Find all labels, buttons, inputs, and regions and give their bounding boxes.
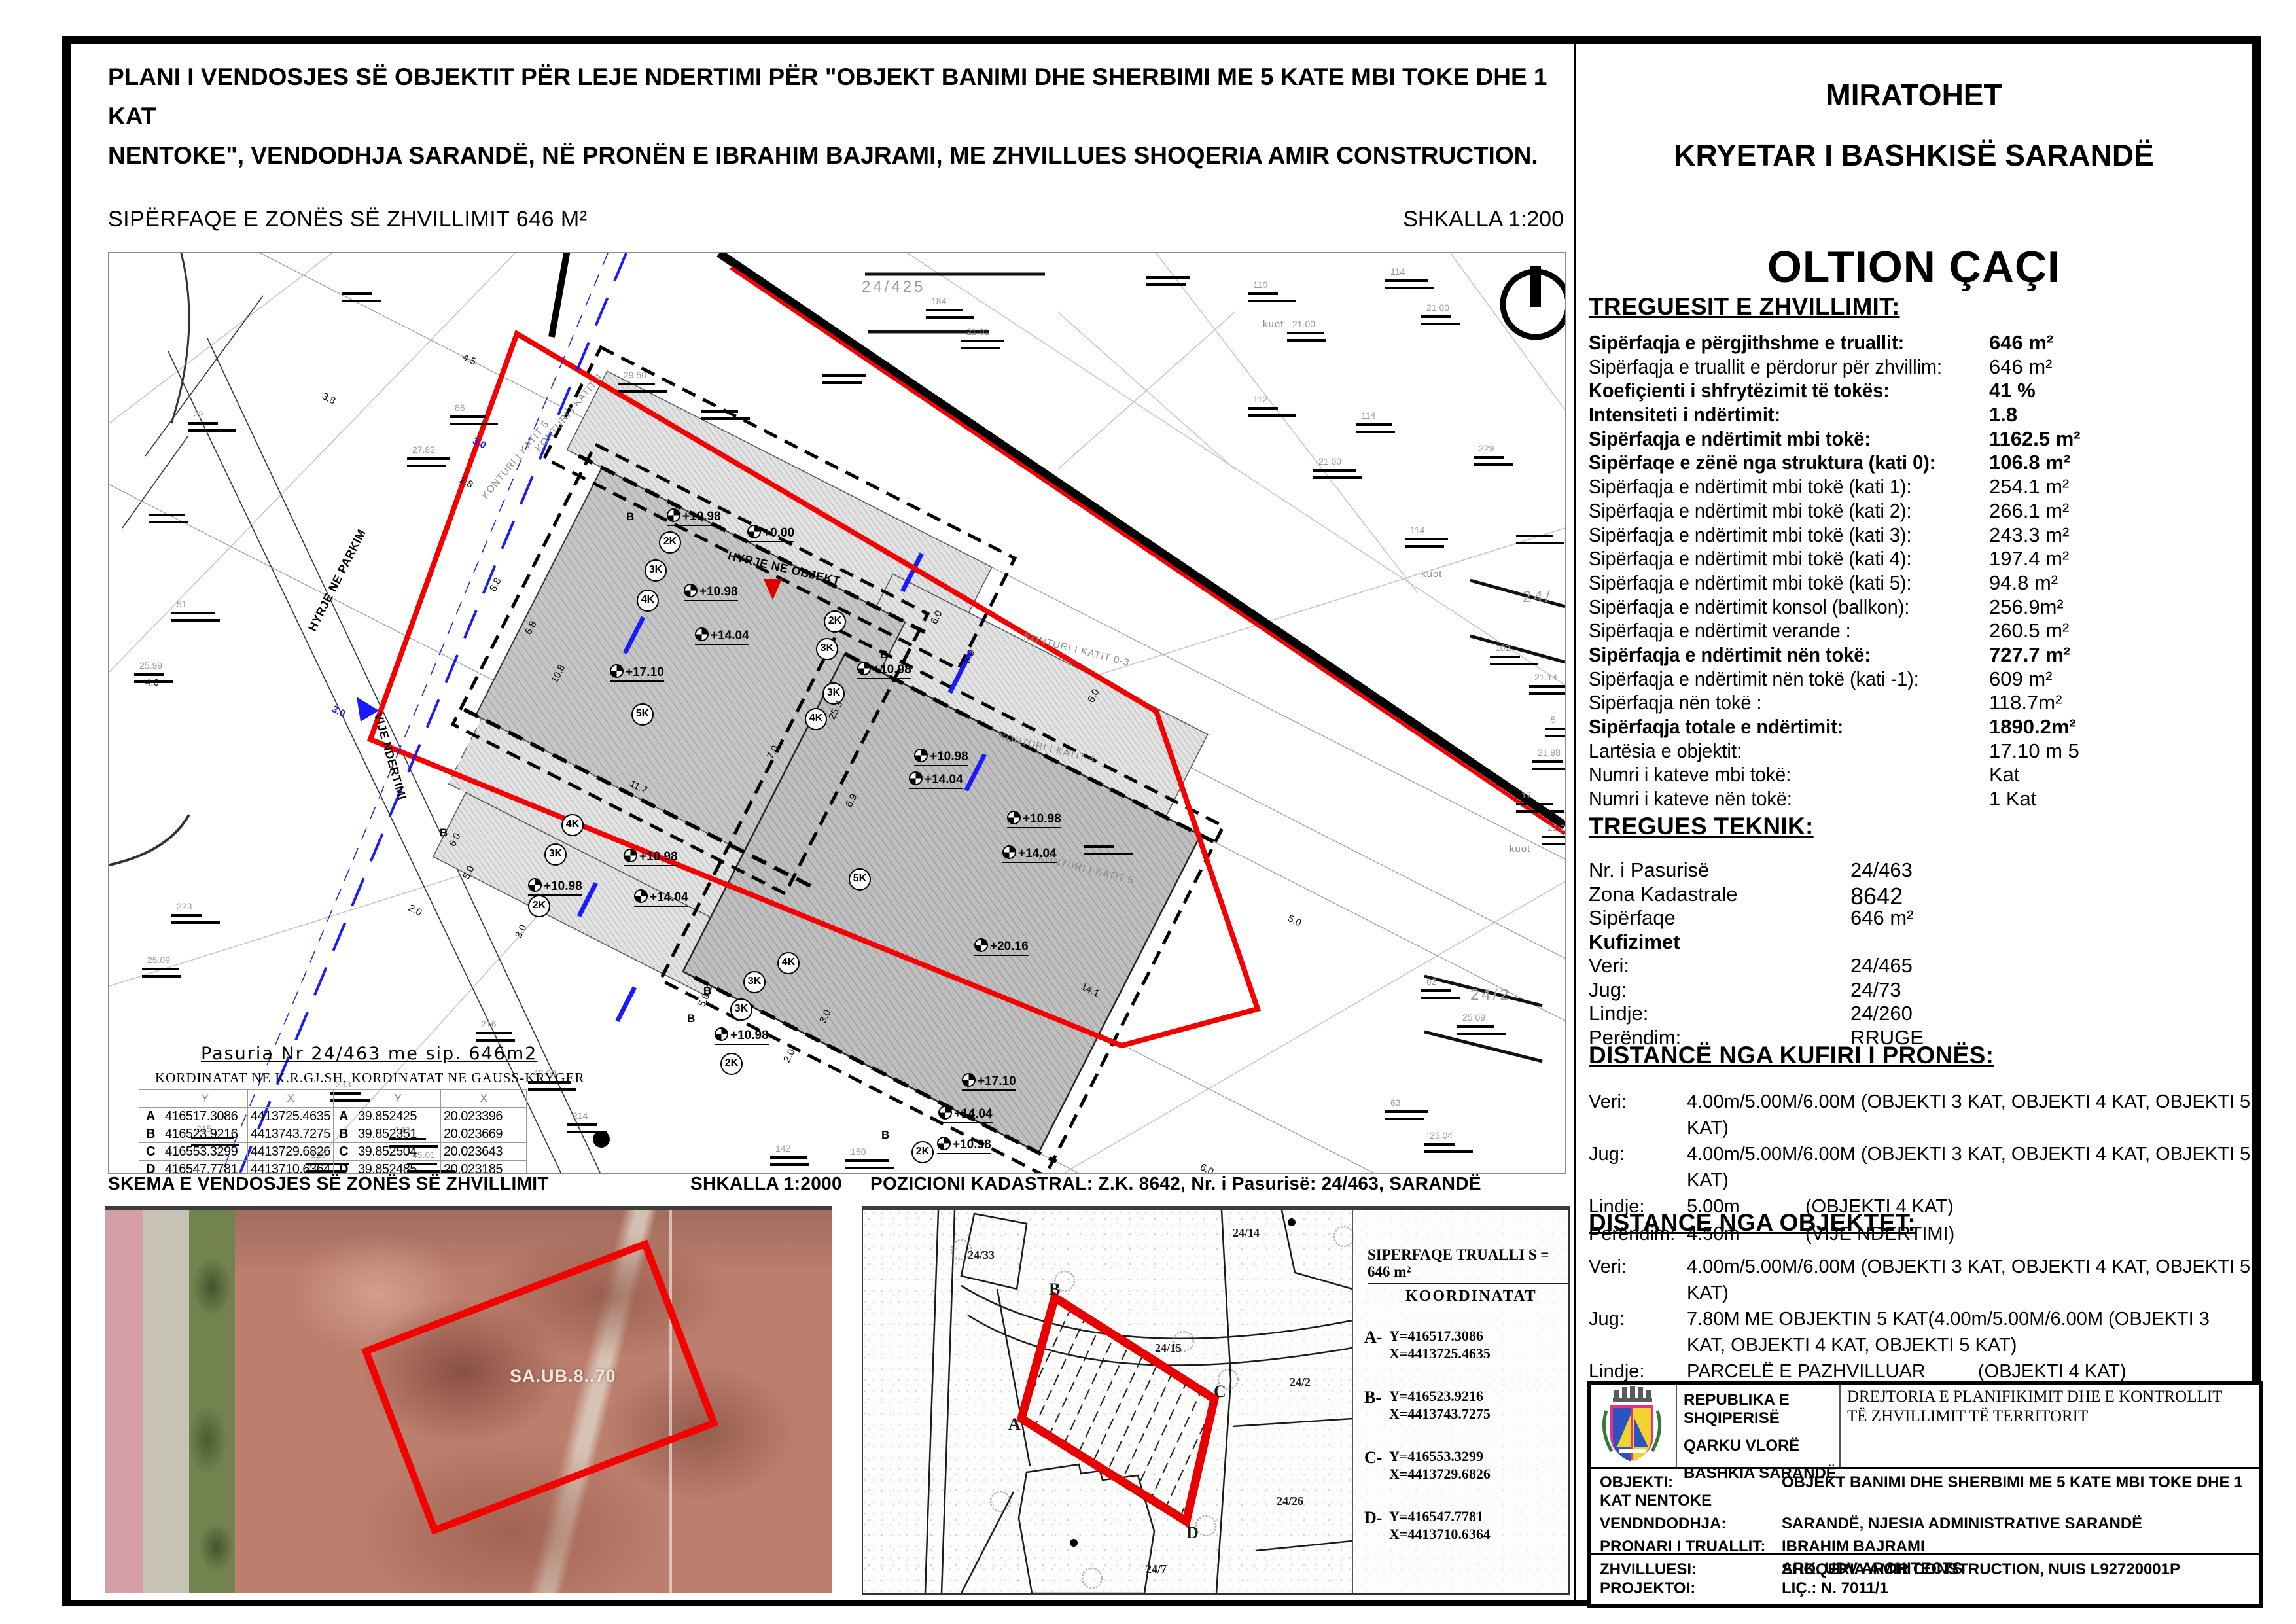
survey-tick: 21.01: [961, 340, 1004, 354]
parcel-coords-title: Pasuria Nr 24/463 me sip. 646m2: [201, 1044, 537, 1064]
site-plan: 24/42524/24/2KONTURI I KATIT 4KONTURI I …: [108, 252, 1566, 1174]
table-row: C39.85250420.023643: [332, 1143, 527, 1161]
plan-label-kcirc: 4K: [637, 590, 659, 612]
table-row: A39.85242520.023396: [332, 1108, 527, 1125]
indicator-row: Numri i kateve mbi tokë:Kat: [1589, 763, 2251, 787]
cadastre-coords-panel: SIPERFAQE TRUALLI S = 646 m² KOORDINATAT…: [1352, 1210, 1569, 1593]
plan-label-elev: +14.04: [634, 889, 688, 907]
indicator-row: Koefiçienti i shfrytëzimit të tokës:41 %: [1589, 379, 2251, 403]
plan-label-kcirc: 4K: [805, 708, 827, 730]
cadastral-map: 24/3324/1424/1524/224/2624/7BACD SIPERFA…: [862, 1206, 1570, 1595]
technical-row: Lindje:24/260: [1589, 1002, 2251, 1026]
benchmark-icon: [909, 771, 923, 785]
survey-tick: 142: [770, 1156, 809, 1171]
plan-label-elev: +14.04: [1002, 845, 1057, 863]
cadastre-point: A-Y=416517.3086X=4413725.4635: [1389, 1327, 1491, 1362]
plan-label-bdim: B: [881, 1129, 889, 1142]
photo-strip-road: [143, 1210, 189, 1593]
indicators-heading: TREGUESIT E ZHVILLIMIT:: [1589, 293, 2251, 321]
survey-tick: 21.20: [1542, 836, 1566, 850]
cadastral-parcel-label: 24/15: [1155, 1341, 1182, 1355]
survey-tick: 184: [926, 309, 974, 323]
indicator-row: Sipërfaqja nën tokë :118.7m²: [1589, 691, 2251, 715]
table-header-row: YX: [332, 1090, 527, 1108]
plan-label-elev: +10.98: [684, 584, 738, 601]
title-block-field: VENDNDODHJA:SARANDË, NJESIA ADMINISTRATI…: [1600, 1515, 2259, 1533]
plan-sheet: PLANI I VENDOSJES SË OBJEKTIT PËR LEJE N…: [0, 0, 2296, 1624]
survey-tick: [342, 292, 381, 307]
indicator-row: Numri i kateve nën tokë:1 Kat: [1589, 787, 2251, 811]
benchmark-icon: [857, 662, 871, 675]
page-title: PLANI I VENDOSJES SË OBJEKTIT PËR LEJE N…: [108, 58, 1593, 175]
survey-tick: [701, 410, 750, 425]
plan-label-kcirc: 2K: [659, 531, 681, 554]
indicator-row: Sipërfaqja e ndërtimit konsol (ballkon):…: [1589, 595, 2251, 620]
survey-tick: 223: [171, 914, 220, 928]
cadastre-label: POZICIONI KADASTRAL: Z.K. 8642, Nr. i Pa…: [870, 1173, 1481, 1194]
survey-tick: 114: [1356, 423, 1395, 438]
plan-label-bdim: B: [440, 826, 448, 839]
municipality-names: REPUBLIKA E SHQIPERISË QARKU VLORË BASHK…: [1677, 1385, 1841, 1467]
plan-label-kcirc: 3K: [730, 998, 752, 1021]
plan-label-elev: +14.04: [909, 771, 963, 789]
survey-tick: 110: [1248, 292, 1296, 307]
plan-scale-label: SHKALLA 1:200: [1309, 207, 1564, 232]
plan-label-elev: +10.98: [667, 508, 721, 526]
site-code: SA.UB.8..70: [510, 1366, 616, 1386]
indicator-row: Sipërfaqe e zënë nga struktura (kati 0):…: [1589, 451, 2251, 475]
plan-label-kcirc: 3K: [645, 559, 667, 582]
plan-label-kontur: kuot: [1263, 319, 1284, 330]
plan-label-kcirc: 4K: [561, 814, 584, 836]
survey-tick: 62: [1421, 989, 1460, 1004]
survey-tick: [822, 374, 866, 389]
survey-tick: 25.09: [1457, 1025, 1506, 1040]
projector-licence: LIÇ.: N. 7011/1: [1782, 1580, 1888, 1598]
cadastre-point: C-Y=416553.3299X=4413729.6826: [1389, 1447, 1491, 1483]
road-edge-short: [552, 253, 567, 337]
table-row: B39.85235120.023669: [332, 1125, 527, 1143]
survey-tick: 22: [188, 422, 236, 436]
plan-label-bdim: B: [880, 648, 888, 662]
plan-label-elev: +10.98: [1007, 811, 1061, 828]
survey-tick: [1146, 276, 1190, 291]
benchmark-icon: [974, 938, 988, 952]
approval-name: OLTION ÇAÇI: [1590, 241, 2238, 292]
benchmark-icon: [747, 525, 761, 538]
plan-label-kcirc: 5K: [849, 868, 871, 891]
coords-table-left: YXA416517.30864413725.4635B416523.921644…: [139, 1089, 334, 1174]
dist-border-heading: DISTANCË NGA KUFIRI I PRONËS:: [1589, 1042, 2251, 1069]
coords-table-right: YXA39.85242520.023396B39.85235120.023669…: [332, 1089, 527, 1174]
plan-label-kcirc: 2K: [824, 610, 846, 633]
technical-row: Sipërfaqe646 m²: [1589, 906, 2251, 930]
plan-label-parcel: 24/2: [1470, 986, 1511, 1004]
cadastre-point: B-Y=416523.9216X=4413743.7275: [1389, 1387, 1491, 1422]
survey-tick: [149, 514, 188, 528]
north-icon: [1503, 266, 1565, 337]
survey-tick: 25.99: [134, 673, 173, 688]
benchmark-icon: [667, 508, 680, 522]
plan-label-elev: +17.10: [610, 664, 664, 682]
frame-top: [62, 36, 2261, 44]
indicator-row: Sipërfaqja e truallit e përdorur për zhv…: [1589, 355, 2251, 380]
distance-row: Jug:7.80M ME OBJEKTIN 5 KAT(4.00m/5.00M/…: [1589, 1306, 2251, 1358]
title-block-field: OBJEKTI:OBJEKT BANIMI DHE SHERBIMI ME 5 …: [1600, 1474, 2259, 1510]
indicator-row: Sipërfaqja e ndërtimit mbi tokë (kati 5)…: [1589, 571, 2251, 595]
plan-label-parcel: 24/: [1523, 588, 1552, 607]
coat-of-arms-icon: [1591, 1385, 1673, 1464]
indicator-row: Intensiteti i ndërtimit:1.8: [1589, 403, 2251, 427]
plan-label-elev: +10.98: [937, 1137, 991, 1154]
survey-tick: 21.98: [1532, 760, 1566, 775]
table-header-row: YX: [139, 1090, 334, 1108]
survey-tick: 229: [1474, 456, 1513, 470]
plan-label-elev: +10.98: [857, 662, 911, 679]
survey-tick: 25.04: [1424, 1143, 1473, 1157]
survey-tick: 150: [845, 1159, 894, 1174]
approval-block: MIRATOHET KRYETAR I BASHKISË SARANDË OLT…: [1590, 77, 2238, 292]
plan-label-elev: +10.98: [624, 849, 678, 866]
frame-right: [2252, 36, 2261, 1606]
benchmark-icon: [1007, 811, 1021, 824]
benchmark-icon: [715, 1027, 728, 1041]
technical-row: Zona Kadastrale8642: [1589, 883, 2251, 907]
indicator-row: Sipërfaqja e ndërtimit verande :260.5 m²: [1589, 619, 2251, 643]
indicator-row: Sipërfaqja e përgjithshme e truallit:646…: [1589, 331, 2251, 355]
table-row: D416547.77814413710.6364: [139, 1161, 334, 1174]
technical-heading: TREGUES TEKNIK:: [1589, 813, 2251, 840]
plan-label-kcirc: 4K: [777, 952, 800, 974]
benchmark-icon: [528, 878, 542, 892]
schema-label: SKEMA E VENDOSJES SË ZONËS SË ZHVILLIMIT: [108, 1173, 549, 1194]
plan-label-elev: +17.10: [962, 1073, 1016, 1091]
benchmark-icon: [624, 849, 637, 862]
plan-label-bdim: B: [687, 1012, 695, 1025]
benchmark-icon: [695, 627, 709, 641]
indicator-row: Sipërfaqja e ndërtimit mbi tokë (kati 3)…: [1589, 523, 2251, 548]
indicator-row: Lartësia e objektit:17.10 m 5: [1589, 739, 2251, 764]
cadastral-parcel-label: B: [1049, 1280, 1060, 1299]
cadastral-parcel-label: D: [1186, 1523, 1199, 1543]
survey-tick: 114: [1405, 538, 1448, 552]
benchmark-icon: [937, 1137, 951, 1150]
survey-tick: 29.50: [618, 383, 667, 397]
title-block: REPUBLIKA E SHQIPERISË QARKU VLORË BASHK…: [1587, 1381, 2263, 1608]
cadastre-area-title: SIPERFAQE TRUALLI S = 646 m²: [1368, 1246, 1569, 1284]
aerial-photo: SA.UB.8..70: [105, 1206, 832, 1593]
approval-miratohet: MIRATOHET: [1590, 77, 2238, 113]
org-line1: REPUBLIKA E SHQIPERISË: [1684, 1391, 1839, 1428]
cadastral-parcel-label: A: [1008, 1415, 1021, 1434]
municipality-logo: [1591, 1385, 1677, 1467]
plan-label-kcirc: 5K: [631, 703, 654, 726]
survey-tick: 21.00: [1421, 315, 1460, 330]
survey-tick: 27.82: [407, 457, 450, 472]
technical-row: Veri:24/465: [1589, 954, 2251, 978]
technical-row: Nr. i Pasurisë24/463: [1589, 858, 2251, 883]
plan-area-label: SIPËRFAQE E ZONËS SË ZHVILLIMIT 646 M²: [108, 207, 588, 232]
plan-label-kcirc: 2K: [720, 1053, 743, 1075]
indicator-row: Sipërfaqja e ndërtimit nën tokë (kati -1…: [1589, 667, 2251, 692]
survey-tick: 21.00: [1313, 469, 1362, 484]
survey-tick: 25.09: [142, 968, 181, 982]
projector-label: PROJEKTOI:: [1600, 1580, 1695, 1598]
cadastral-parcel-label: 24/7: [1146, 1562, 1167, 1576]
schema-scale-label: SHKALLA 1:2000: [690, 1173, 842, 1194]
benchmark-icon: [634, 889, 648, 903]
plan-label-elev: +14.04: [695, 627, 749, 645]
plan-label-parcel: 24/425: [862, 278, 925, 296]
dist-objects-heading: DISTANCE NGA OBJEKTET:: [1589, 1209, 2251, 1237]
benchmark-icon: [684, 584, 698, 597]
title-block-field: PRONARI I TRUALLIT:IBRAHIM BAJRAMI: [1600, 1538, 2259, 1556]
benchmark-icon: [610, 664, 624, 678]
survey-tick: 214: [567, 1123, 607, 1138]
indicator-row: Sipërfaqja e ndërtimit mbi tokë:1162.5 m…: [1589, 427, 2251, 451]
benchmark-icon: [1002, 845, 1016, 859]
distance-row: Jug:4.00m/5.00M/6.00M (OBJEKTI 3 KAT, OB…: [1589, 1141, 2251, 1193]
title-line1: PLANI I VENDOSJES SË OBJEKTIT PËR LEJE N…: [108, 58, 1593, 136]
cadastral-parcel-label: 24/33: [968, 1248, 995, 1262]
section-indicators: TREGUESIT E ZHVILLIMIT: Sipërfaqja e për…: [1589, 293, 2251, 811]
benchmark-icon: [914, 749, 928, 762]
table-left-title: KORDINATAT NE K.R.GJ.SH.: [155, 1070, 347, 1086]
title-block-row1: REPUBLIKA E SHQIPERISË QARKU VLORË BASHK…: [1591, 1385, 2259, 1469]
survey-tick: 114: [1385, 279, 1434, 294]
benchmark-icon: [962, 1073, 976, 1087]
projector-firm: ARK. UDV ARCHITECTS: [1782, 1560, 1962, 1578]
survey-tick: 21.14: [1529, 685, 1566, 699]
plan-label-kontur: kuot: [1510, 843, 1530, 855]
survey-tick: 112: [1248, 407, 1296, 421]
indicator-row: Sipërfaqja e ndërtimit mbi tokë (kati 2)…: [1589, 499, 2251, 523]
approval-kryetar: KRYETAR I BASHKISË SARANDË: [1590, 137, 2238, 173]
cadastre-coords-title: KOORDINATAT: [1405, 1288, 1537, 1305]
indicator-row: Sipërfaqja totale e ndërtimit:1890.2m²: [1589, 715, 2251, 739]
cadastral-parcel-label: 24/14: [1233, 1226, 1260, 1240]
survey-tick: 21.00: [1287, 332, 1326, 346]
plan-label-kcirc: 2K: [911, 1141, 934, 1163]
plan-label-kcirc: 3K: [816, 638, 838, 660]
plan-label-elev: +20.16: [974, 938, 1029, 956]
photo-strip-green: [189, 1210, 235, 1593]
plan-label-elev: +14.04: [938, 1106, 993, 1123]
plan-label-kcirc: 3K: [544, 843, 567, 866]
plan-label-kontur: kuot: [1421, 569, 1442, 580]
plan-label-elev: +10.98: [528, 878, 582, 896]
table-row: D39.85248520.023185: [332, 1161, 527, 1174]
survey-tick: [1516, 535, 1564, 549]
photo-strip-pink: [105, 1210, 143, 1593]
table-row: A416517.30864413725.4635: [139, 1108, 334, 1125]
table-row: B416523.92164413743.7275: [139, 1125, 334, 1143]
distance-row: Veri:4.00m/5.00M/6.00M (OBJEKTI 3 KAT, O…: [1589, 1254, 2251, 1306]
plan-label-elev: +10.98: [715, 1027, 769, 1045]
cadastral-parcel-label: 24/2: [1290, 1375, 1311, 1389]
plan-label-bdim: B: [626, 510, 634, 523]
frame-divider: [1574, 39, 1576, 1601]
title-block-fields: OBJEKTI:OBJEKT BANIMI DHE SHERBIMI ME 5 …: [1591, 1469, 2259, 1555]
indicator-row: Sipërfaqja e ndërtimit mbi tokë (kati 1)…: [1589, 475, 2251, 499]
technical-row: Kufizimet: [1589, 930, 2251, 955]
plan-label-kcirc: 3K: [743, 971, 766, 993]
indicator-row: Sipërfaqja e ndërtimit nën tokë:727.7 m²: [1589, 643, 2251, 667]
survey-tick: 5: [1545, 728, 1566, 742]
benchmark-icon: [938, 1106, 952, 1120]
survey-tick: 86: [450, 415, 498, 430]
distance-row: Veri:4.00m/5.00M/6.00M (OBJEKTI 3 KAT, O…: [1589, 1089, 2251, 1141]
directorate-name: DREJTORIA E PLANIFIKIMIT DHE E KONTROLLI…: [1847, 1387, 2240, 1426]
survey-tick: 102: [1490, 656, 1538, 670]
table-row: C416553.32994413729.6826: [139, 1143, 334, 1161]
plan-label-kcirc: 2K: [528, 895, 550, 917]
technical-row: Jug:24/73: [1589, 978, 2251, 1002]
cadastral-parcel-label: C: [1214, 1382, 1226, 1402]
plan-label-elev: +10.98: [914, 749, 968, 766]
cadastre-point: D-Y=416547.7781X=4413710.6364: [1389, 1508, 1491, 1543]
table-right-title: KORDINATAT NE GAUSS-KRYGER: [351, 1070, 584, 1086]
survey-tick: [1084, 845, 1133, 860]
survey-tick: 17: [1516, 803, 1564, 817]
indicator-row: Sipërfaqja e ndërtimit mbi tokë (kati 4)…: [1589, 547, 2251, 571]
survey-tick: 51: [171, 612, 220, 626]
org-line2: QARKU VLORË: [1684, 1437, 1839, 1455]
survey-tick: 63: [1385, 1110, 1428, 1125]
section-technical: TREGUES TEKNIK: Nr. i Pasurisë24/463Zona…: [1589, 813, 2251, 1050]
frame-left: [62, 36, 71, 1606]
title-line2: NENTOKE", VENDODHJA SARANDË, NË PRONËN E…: [108, 136, 1593, 175]
plan-label-elev: +0.00: [747, 525, 794, 542]
cadastral-parcel-label: 24/26: [1277, 1494, 1303, 1508]
